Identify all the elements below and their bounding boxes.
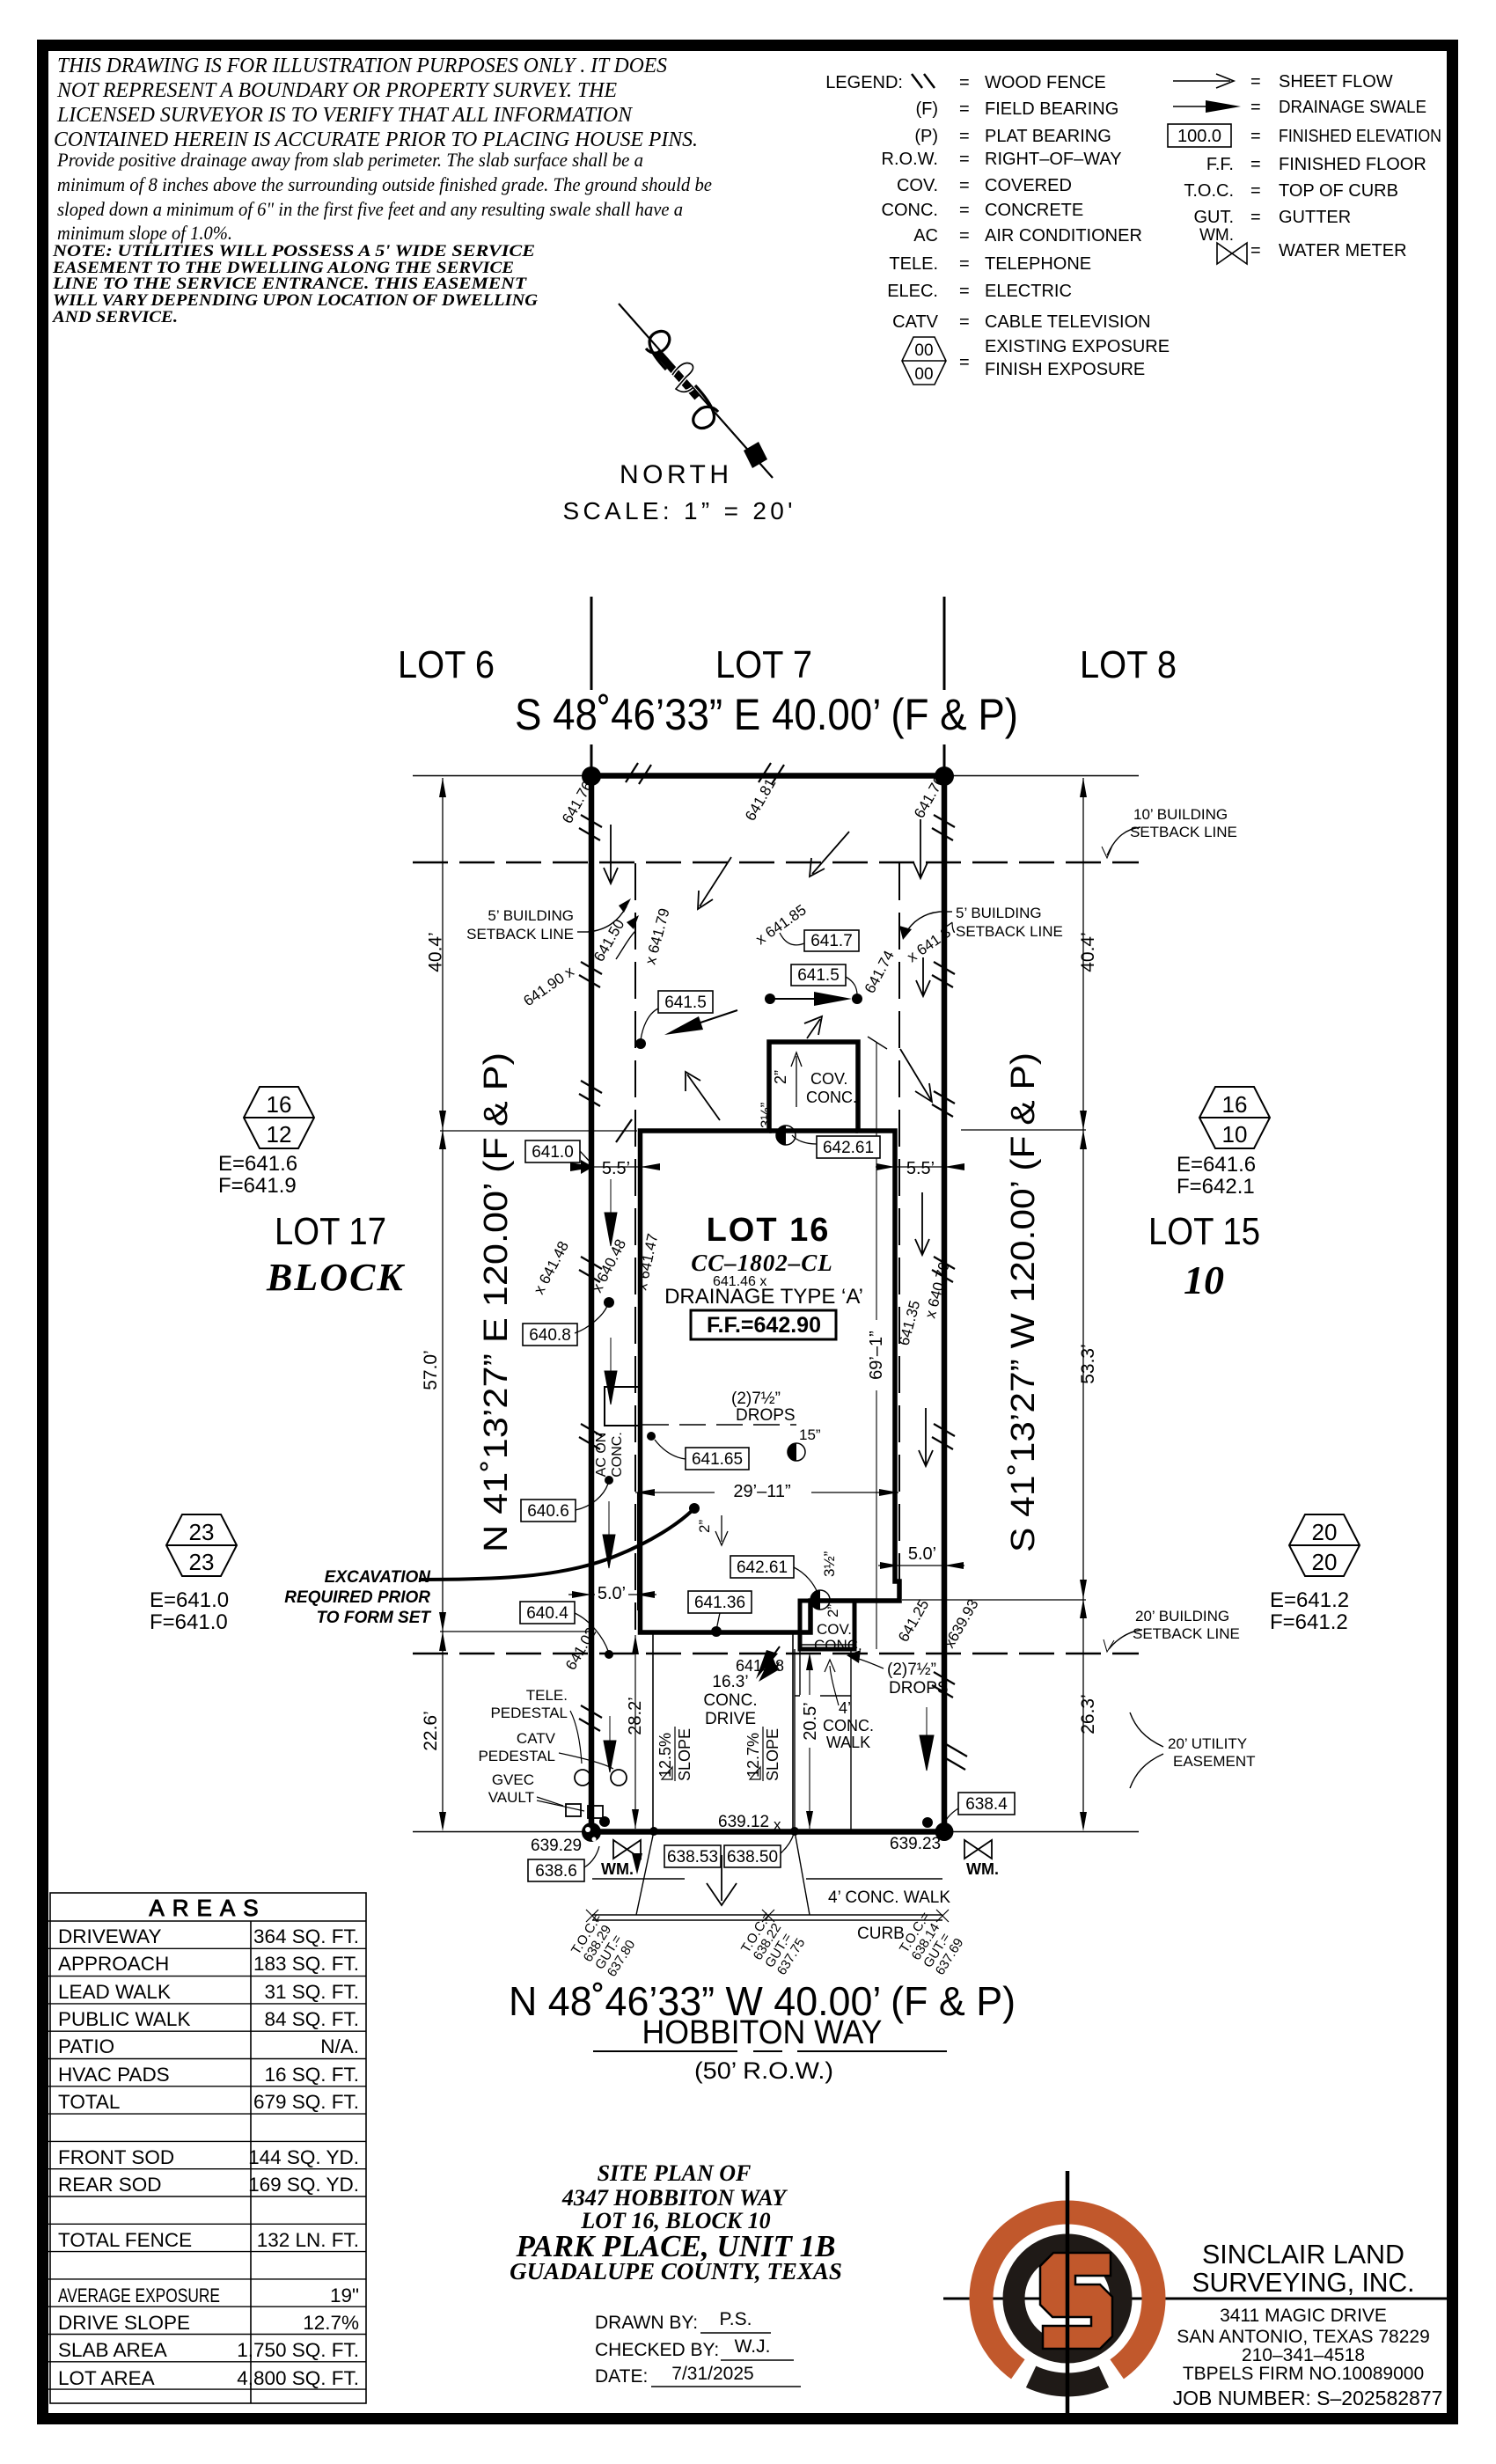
svg-text:S 48˚46’33” E 40.00’ (F & P): S 48˚46’33” E 40.00’ (F & P) [515,690,1018,739]
svg-text:F=641.9: F=641.9 [218,1174,297,1198]
svg-text:=: = [959,353,970,372]
svg-text:10: 10 [1222,1121,1248,1148]
svg-text:x: x [774,1816,781,1833]
svg-text:WM.: WM. [966,1860,999,1878]
svg-text:26.3’: 26.3’ [1078,1694,1098,1734]
svg-text:SETBACK LINE: SETBACK LINE [956,923,1063,940]
svg-text:(F): (F) [915,99,938,119]
svg-text:(2)7½”: (2)7½” [887,1661,936,1679]
svg-text:641.5: 641.5 [664,994,707,1012]
svg-text:642.61: 642.61 [737,1558,788,1577]
svg-text:TOP OF CURB: TOP OF CURB [1279,181,1398,201]
svg-text:CHECKED BY:: CHECKED BY: [595,2340,719,2360]
svg-text:639.12: 639.12 [718,1813,769,1831]
svg-text:(50’ R.O.W.): (50’ R.O.W.) [694,2057,833,2084]
svg-text:210–341–4518: 210–341–4518 [1242,2345,1365,2365]
svg-text:WOOD FENCE: WOOD FENCE [985,73,1106,92]
svg-text:640.8: 640.8 [529,1326,571,1345]
svg-text:JOB NUMBER: S–202582877: JOB NUMBER: S–202582877 [1173,2387,1443,2409]
svg-text:FINISH EXPOSURE: FINISH EXPOSURE [985,360,1145,379]
svg-text:LOT 16: LOT 16 [707,1212,831,1249]
svg-text:CONC.: CONC. [823,1717,874,1734]
svg-text:PLAT BEARING: PLAT BEARING [985,127,1111,146]
svg-text:144 SQ. YD.: 144 SQ. YD. [248,2146,359,2168]
svg-text:DRAWN BY:: DRAWN BY: [595,2313,698,2333]
svg-text:CONC.: CONC. [806,1089,857,1106]
svg-text:20: 20 [1312,1549,1338,1575]
svg-text:641.50: 641.50 [590,916,627,964]
svg-text:S 41˚13’27” W 120.00’ (F & P): S 41˚13’27” W 120.00’ (F & P) [1005,1052,1042,1552]
svg-text:639.23: 639.23 [890,1835,941,1853]
svg-text:GUT.: GUT. [1193,208,1234,227]
svg-text:SETBACK LINE: SETBACK LINE [1130,824,1237,840]
svg-text:639.29: 639.29 [531,1837,582,1855]
svg-text:x 641.37: x 641.37 [904,919,960,965]
svg-text:WILL VARY DEPENDING UPON L: WILL VARY DEPENDING UPON LOCATION OF DWE… [53,291,538,310]
svg-text:16.3’: 16.3’ [712,1673,748,1691]
svg-text:E=641.0: E=641.0 [150,1588,229,1612]
svg-text:5.5’: 5.5’ [906,1159,935,1178]
svg-text:HVAC PADS: HVAC PADS [58,2064,170,2086]
svg-text:SINCLAIR LAND: SINCLAIR LAND [1202,2239,1404,2270]
svg-text:=: = [1250,208,1261,227]
svg-text:640.6: 640.6 [527,1502,569,1521]
svg-text:COV.: COV. [817,1621,852,1638]
svg-text:=: = [1250,72,1261,92]
svg-text:PATIO: PATIO [58,2035,114,2057]
svg-text:=: = [959,254,970,274]
svg-text:LOT 15: LOT 15 [1148,1210,1260,1253]
svg-text:=: = [959,201,970,220]
svg-text:4,800 SQ. FT.: 4,800 SQ. FT. [237,2367,359,2389]
svg-text:12: 12 [267,1121,292,1148]
svg-text:=: = [959,226,970,246]
svg-text:20’ BUILDING: 20’ BUILDING [1135,1608,1229,1624]
svg-text:638.53: 638.53 [667,1848,718,1866]
svg-text:F=641.2: F=641.2 [1270,1610,1348,1634]
svg-text:HOBBITON WAY: HOBBITON WAY [642,2014,883,2051]
svg-text:LEAD WALK: LEAD WALK [58,1981,171,2003]
svg-text:TELE.: TELE. [889,254,938,274]
svg-text:TOTAL FENCE: TOTAL FENCE [58,2229,192,2251]
svg-text:F=641.0: F=641.0 [150,1610,228,1634]
svg-text:=: = [1250,181,1261,201]
svg-text:=: = [959,176,970,195]
svg-text:x 641.48: x 641.48 [531,1238,572,1297]
svg-text:183 SQ. FT.: 183 SQ. FT. [253,1953,359,1975]
svg-text:CONCRETE: CONCRETE [985,201,1083,220]
svg-text:=: = [1250,98,1261,117]
svg-text:CONC.: CONC. [703,1691,757,1710]
svg-text:E=641.2: E=641.2 [1270,1588,1349,1612]
svg-text:WATER METER: WATER METER [1279,241,1407,260]
svg-text:641.74: 641.74 [862,948,898,996]
svg-text:TELE.: TELE. [526,1687,568,1704]
svg-text:x 641.79: x 641.79 [642,906,673,966]
svg-text:=: = [959,73,970,92]
svg-text:AREAS: AREAS [149,1895,266,1921]
svg-text:minimum slope of 1.0%.: minimum slope of 1.0%. [57,222,232,244]
svg-text:=: = [1250,155,1261,174]
svg-text:GVEC: GVEC [492,1771,534,1788]
svg-text:TBPELS FIRM NO.10089000: TBPELS FIRM NO.10089000 [1183,2364,1424,2384]
svg-text:LINE TO THE SERVICE ENTRAN: LINE TO THE SERVICE ENTRANCE. THIS EASEM… [52,275,528,293]
svg-text:NORTH: NORTH [620,460,729,489]
svg-text:E=641.6: E=641.6 [218,1152,297,1176]
svg-text:x 641.47: x 641.47 [633,1232,661,1292]
svg-text:84 SQ. FT.: 84 SQ. FT. [264,2008,359,2030]
svg-text:SCALE: 1” = 20': SCALE: 1” = 20' [563,497,793,524]
svg-text:00: 00 [914,341,933,360]
svg-text:BLOCK: BLOCK [266,1256,405,1299]
svg-text:679 SQ. FT.: 679 SQ. FT. [253,2091,359,2113]
svg-text:LICENSED SURVEYOR IS TO VERIFY: LICENSED SURVEYOR IS TO VERIFY THAT ALL … [56,104,634,127]
svg-text:W.J.: W.J. [735,2336,771,2357]
svg-text:EXISTING EXPOSURE: EXISTING EXPOSURE [985,337,1170,356]
svg-text:SETBACK LINE: SETBACK LINE [1133,1625,1240,1642]
svg-text:CONC.: CONC. [814,1637,862,1654]
svg-text:=: = [959,150,970,169]
svg-text:NOTE: UTILITIES WILL POSSES: NOTE: UTILITIES WILL POSSESS A 5' WIDE S… [52,242,535,260]
svg-text:SHEET FLOW: SHEET FLOW [1279,72,1393,92]
svg-text:EASEMENT: EASEMENT [1173,1753,1256,1770]
svg-text:20.5’: 20.5’ [801,1702,820,1740]
svg-text:4’ CONC. WALK: 4’ CONC. WALK [828,1888,950,1907]
svg-text:E=641.6: E=641.6 [1177,1153,1256,1177]
svg-text:AC ON: AC ON [594,1433,609,1478]
svg-text:ELEC.: ELEC. [887,282,938,301]
svg-text:640.4: 640.4 [526,1604,568,1623]
svg-text:P.S.: P.S. [720,2309,752,2329]
svg-text:WALK: WALK [826,1734,870,1751]
svg-text:5’ BUILDING: 5’ BUILDING [488,907,574,924]
svg-text:x 641.85: x 641.85 [752,901,809,948]
svg-text:2”: 2” [772,1070,789,1084]
svg-text:638.4: 638.4 [965,1795,1008,1814]
svg-text:CATV: CATV [517,1730,556,1747]
svg-text:LOT 8: LOT 8 [1080,643,1177,686]
svg-text:DRIVE SLOPE: DRIVE SLOPE [58,2312,190,2334]
svg-text:641.81: 641.81 [742,775,779,824]
svg-text:2”: 2” [696,1520,713,1533]
svg-text:638.50: 638.50 [727,1848,778,1866]
svg-text:F.F.: F.F. [1206,155,1234,174]
svg-text:AVERAGE EXPOSURE: AVERAGE EXPOSURE [58,2284,220,2306]
svg-text:THIS DRAWING IS FOR ILLUSTRATI: THIS DRAWING IS FOR ILLUSTRATION PURPOSE… [57,55,667,77]
svg-text:3½”: 3½” [821,1551,838,1577]
svg-text:LOT 7: LOT 7 [715,643,812,686]
svg-text:NOT REPRESENT A BOUNDARY OR PR: NOT REPRESENT A BOUNDARY OR PROPERTY SUR… [56,79,617,102]
svg-text:19": 19" [330,2284,359,2306]
svg-text:641.25: 641.25 [895,1596,932,1645]
svg-text:FIELD BEARING: FIELD BEARING [985,99,1118,119]
svg-text:53.3’: 53.3’ [1078,1344,1098,1384]
svg-text:FRONT SOD: FRONT SOD [58,2146,174,2168]
svg-text:CURB: CURB [857,1925,905,1943]
svg-text:DRIVEWAY: DRIVEWAY [58,1925,162,1947]
svg-text:3411 MAGIC DRIVE: 3411 MAGIC DRIVE [1220,2306,1387,2326]
svg-text:69’–1”: 69’–1” [867,1331,886,1380]
svg-text:SETBACK LINE: SETBACK LINE [466,926,574,942]
svg-text:12.7%: 12.7% [303,2312,359,2334]
svg-text:TO FORM SET: TO FORM SET [317,1609,432,1627]
svg-text:29’–11”: 29’–11” [733,1482,790,1501]
svg-text:AC: AC [913,226,938,246]
svg-text:AND SERVICE.: AND SERVICE. [52,308,178,326]
svg-text:DATE:: DATE: [595,2366,648,2387]
svg-text:638.6: 638.6 [535,1862,577,1881]
svg-text:COV.: COV. [810,1070,847,1088]
svg-text:16: 16 [1222,1091,1248,1118]
svg-text:641.90 x: 641.90 x [520,963,577,1009]
svg-text:00: 00 [914,365,933,384]
svg-text:FINISHED ELEVATION: FINISHED ELEVATION [1279,127,1441,146]
svg-text:FINISHED FLOOR: FINISHED FLOOR [1279,155,1426,174]
svg-text:5.5’: 5.5’ [602,1159,630,1178]
svg-text:CATV: CATV [892,312,939,332]
svg-text:169 SQ. YD.: 169 SQ. YD. [248,2174,359,2196]
svg-text:PUBLIC WALK: PUBLIC WALK [58,2008,190,2030]
svg-text:COV.: COV. [897,176,938,195]
svg-text:10’ BUILDING: 10’ BUILDING [1133,806,1228,823]
svg-text:PEDESTAL: PEDESTAL [478,1748,555,1764]
svg-text:SITE PLAN OF: SITE PLAN OF [598,2160,752,2186]
svg-text:57.0’: 57.0’ [421,1350,441,1390]
svg-text:=: = [959,282,970,301]
svg-text:641.5: 641.5 [797,966,840,985]
svg-text:16 SQ. FT.: 16 SQ. FT. [264,2064,359,2086]
svg-text:23: 23 [189,1519,215,1545]
svg-text:TELEPHONE: TELEPHONE [985,254,1091,274]
svg-text:22.6’: 22.6’ [421,1711,441,1751]
svg-text:=: = [1250,127,1261,146]
svg-text:SURVEYING, INC.: SURVEYING, INC. [1192,2267,1415,2298]
svg-text:CONC.: CONC. [882,201,938,220]
svg-text:APPROACH: APPROACH [58,1953,169,1975]
svg-text:VAULT: VAULT [488,1789,534,1806]
svg-text:F=642.1: F=642.1 [1177,1175,1255,1199]
svg-text:5’ BUILDING: 5’ BUILDING [956,905,1042,921]
svg-text:N/A.: N/A. [320,2035,359,2057]
svg-text:x 640.70: x 640.70 [922,1260,953,1320]
svg-text:LEGEND:: LEGEND: [825,73,903,92]
svg-text:R.O.W.: R.O.W. [882,150,938,169]
svg-text:364 SQ. FT.: 364 SQ. FT. [253,1925,359,1947]
svg-text:PEDESTAL: PEDESTAL [490,1705,568,1721]
svg-text:LOT 6: LOT 6 [398,643,495,686]
svg-text:LOT 17: LOT 17 [275,1210,386,1253]
svg-text:F.F.=642.90: F.F.=642.90 [707,1313,821,1338]
svg-text:12.7%: 12.7% [744,1733,762,1778]
svg-text:=: = [959,127,970,146]
svg-text:=: = [959,312,970,332]
svg-text:T.O.C.: T.O.C. [1184,181,1234,201]
svg-text:1,750 SQ. FT.: 1,750 SQ. FT. [237,2339,359,2361]
svg-text:RIGHT–OF–WAY: RIGHT–OF–WAY [985,150,1122,169]
svg-text:DROPS: DROPS [889,1679,949,1698]
svg-text:23: 23 [189,1549,215,1575]
svg-text:EXCAVATION: EXCAVATION [325,1568,432,1587]
svg-text:20: 20 [1312,1519,1338,1545]
svg-text:SLOPE: SLOPE [764,1728,781,1781]
svg-text:641.7: 641.7 [810,932,853,950]
svg-text:(2)7½”: (2)7½” [731,1390,781,1408]
svg-text:GUTTER: GUTTER [1279,208,1351,227]
svg-text:REQUIRED PRIOR: REQUIRED PRIOR [284,1588,430,1607]
svg-text:40.4’: 40.4’ [1078,932,1098,972]
svg-text:641.65: 641.65 [692,1450,743,1469]
svg-text:4’: 4’ [839,1699,851,1717]
svg-text:7/31/2025: 7/31/2025 [671,2364,753,2384]
svg-text:SLOPE: SLOPE [676,1728,693,1781]
svg-text:x 640.48: x 640.48 [589,1236,630,1295]
svg-text:TOTAL: TOTAL [58,2091,120,2113]
svg-text:CABLE TELEVISION: CABLE TELEVISION [985,312,1151,332]
svg-text:4347 HOBBITON WAY: 4347 HOBBITON WAY [561,2185,788,2211]
svg-text:WM.: WM. [601,1860,634,1878]
svg-text:DRAINAGE SWALE: DRAINAGE SWALE [1279,98,1426,117]
svg-text:28.2’: 28.2’ [626,1697,645,1734]
svg-text:2”: 2” [825,1604,841,1617]
svg-text:=: = [1250,241,1261,260]
svg-text:5.0’: 5.0’ [598,1584,626,1603]
svg-text:15”: 15” [799,1426,821,1443]
svg-text:SAN ANTONIO, TEXAS 78229: SAN ANTONIO, TEXAS 78229 [1177,2327,1430,2347]
svg-text:COVERED: COVERED [985,176,1072,195]
svg-text:DRAINAGE TYPE ‘A’: DRAINAGE TYPE ‘A’ [664,1285,863,1309]
svg-text:642.61: 642.61 [823,1139,874,1157]
svg-text:=: = [959,99,970,119]
svg-text:31 SQ. FT.: 31 SQ. FT. [264,1981,359,2003]
svg-text:(P): (P) [914,127,938,146]
svg-text:CONC.: CONC. [610,1432,625,1478]
svg-text:20’ UTILITY: 20’ UTILITY [1168,1735,1247,1752]
svg-text:5.0’: 5.0’ [908,1544,936,1564]
svg-text:100.0: 100.0 [1177,127,1221,146]
svg-text:DROPS: DROPS [736,1406,796,1425]
svg-text:CC–1802–CL: CC–1802–CL [691,1250,833,1276]
svg-text:641.36: 641.36 [694,1594,745,1612]
svg-text:12.5%: 12.5% [656,1733,674,1778]
svg-text:10: 10 [1184,1258,1224,1302]
svg-text:3½”: 3½” [758,1102,774,1128]
svg-text:641.0: 641.0 [532,1143,574,1162]
svg-text:SLAB AREA: SLAB AREA [58,2339,167,2361]
svg-text:DRIVE: DRIVE [705,1710,756,1728]
svg-text:REAR SOD: REAR SOD [58,2174,162,2196]
svg-text:LOT AREA: LOT AREA [58,2367,155,2389]
svg-text:AIR CONDITIONER: AIR CONDITIONER [985,226,1142,246]
svg-text:GUADALUPE COUNTY, TEXAS: GUADALUPE COUNTY, TEXAS [510,2258,842,2284]
svg-text:132 LN. FT.: 132 LN. FT. [257,2229,359,2251]
svg-text:Provide positive drainage away: Provide positive drainage away from slab… [56,149,643,171]
svg-text:minimum of 8 inches above the: minimum of 8 inches above the surroundin… [57,173,712,195]
svg-text:ELECTRIC: ELECTRIC [985,282,1072,301]
svg-text:N 41˚13’27” E 120.00’ (F & P): N 41˚13’27” E 120.00’ (F & P) [478,1052,515,1552]
svg-text:16: 16 [267,1091,292,1118]
svg-text:sloped down a minimum of 6" in: sloped down a minimum of 6" in the first… [57,198,683,220]
svg-text:40.4’: 40.4’ [426,932,446,972]
